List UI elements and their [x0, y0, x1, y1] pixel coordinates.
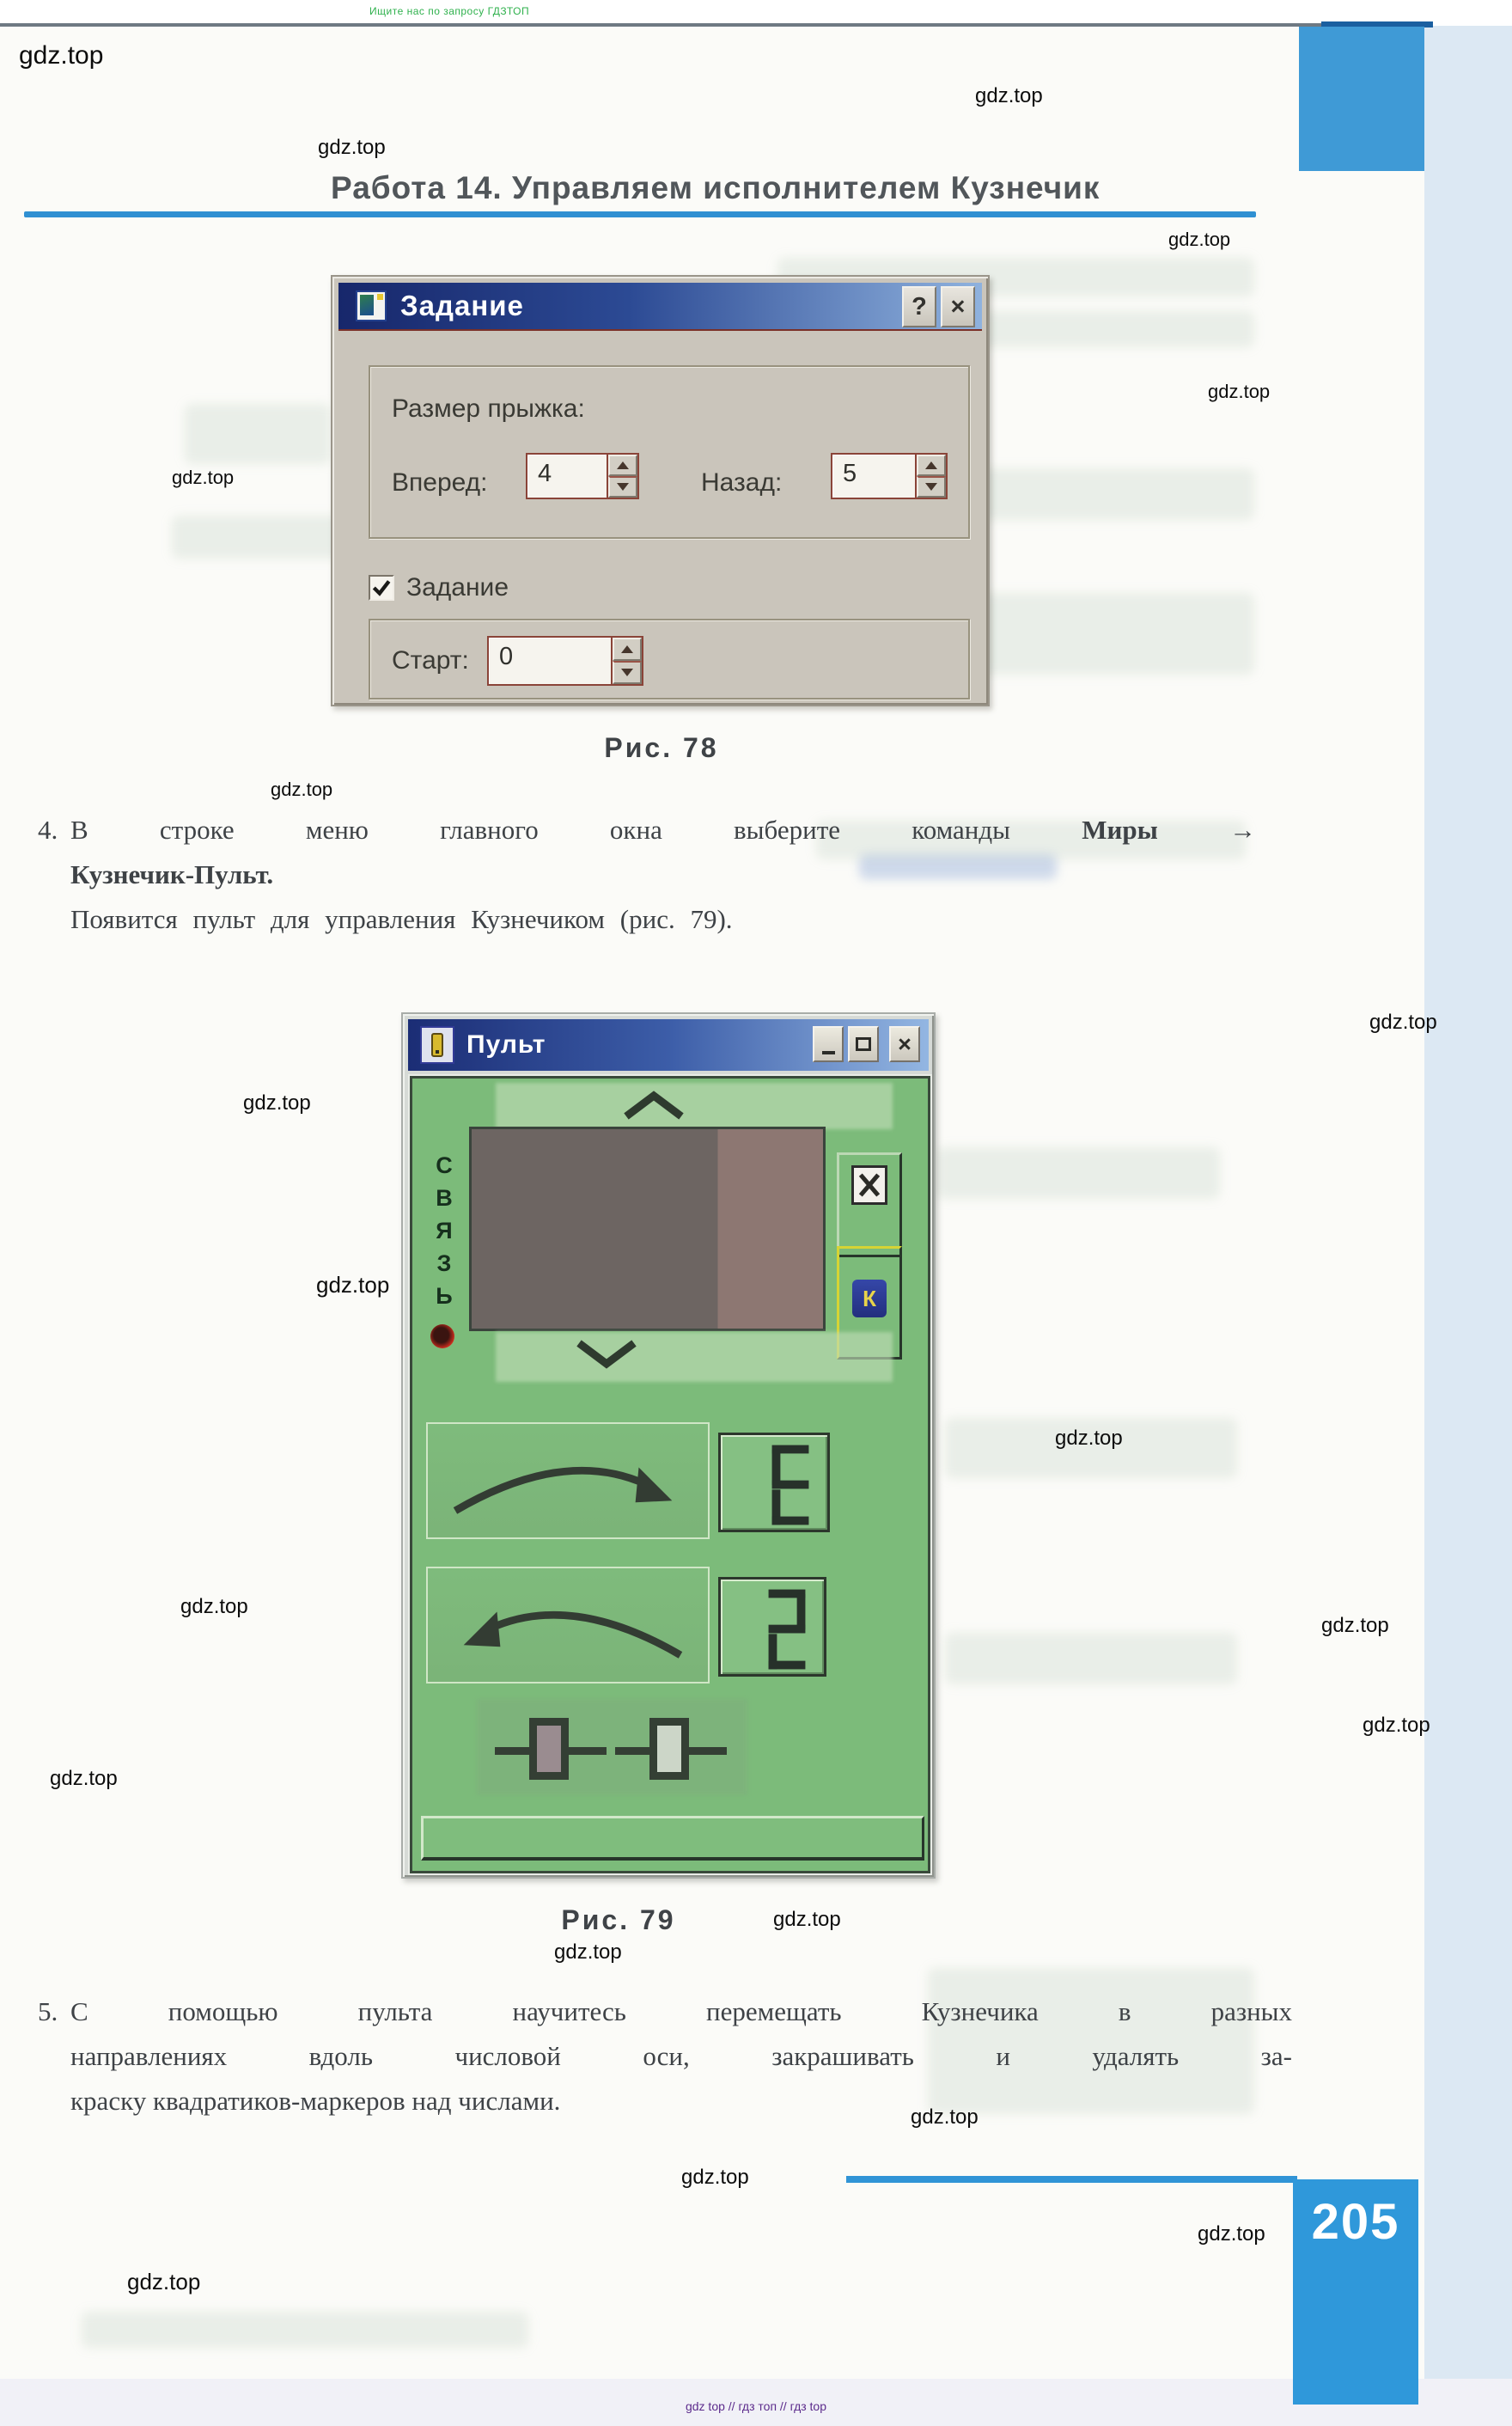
top-band [496, 1083, 893, 1129]
minimize-icon [822, 1051, 835, 1054]
backward-jump-display [718, 1577, 826, 1677]
watermark: gdz.top [127, 2269, 200, 2295]
pult-window-title: Пульт [466, 1030, 546, 1060]
forward-spin-down-button[interactable] [608, 476, 637, 498]
minimize-button[interactable] [813, 1026, 844, 1062]
forward-spinner[interactable]: 4 [526, 453, 639, 499]
pult-screen [469, 1127, 826, 1331]
watermark: gdz.top [1198, 2222, 1265, 2246]
task-checkbox-row[interactable]: Задание [369, 573, 509, 602]
page-number-rule [846, 2176, 1297, 2183]
watermark: gdz.top [975, 84, 1043, 108]
arrow-right-icon: → [1229, 815, 1256, 845]
start-spin-down-button[interactable] [613, 661, 642, 684]
forward-spin-up-button[interactable] [608, 455, 637, 476]
x-key-frame [837, 1152, 902, 1257]
jump-backward-button[interactable] [426, 1567, 710, 1684]
watermark: gdz.top [172, 467, 234, 489]
scanned-textbook-page: Ищите нас по запросу ГДЗТОП gdz.top gdz.… [0, 0, 1512, 2426]
step-5-line-1: С помощью пульта научитесь перемещать Ку… [70, 1989, 1292, 2034]
step-4-line-2: Кузнечик-Пульт. [70, 852, 1256, 897]
watermark: gdz.top [554, 1940, 622, 1965]
back-label: Назад: [701, 468, 782, 498]
zadanie-dialog: Задание ? × Размер прыжка: Вперед: 4 Наз… [331, 275, 990, 706]
back-spin-up-button[interactable] [917, 455, 946, 476]
step-5-line-3: краску квадратиков-маркеров над числами. [70, 2079, 1292, 2124]
arrow-down-icon [617, 483, 629, 491]
link-indicator-led [430, 1324, 454, 1348]
watermark: gdz.top [19, 41, 103, 70]
bleed-artifact [945, 1633, 1237, 1684]
pult-window: Пульт × С В Я З Ь [401, 1012, 936, 1879]
pult-window-icon [420, 1026, 454, 1064]
figure-79-caption: Рис. 79 [438, 1904, 799, 1936]
step-number: 5. [38, 1989, 58, 2034]
close-button[interactable]: × [941, 286, 975, 327]
zadanie-dialog-title: Задание [400, 290, 524, 322]
chevron-down-icon[interactable] [574, 1338, 639, 1372]
start-groupbox: Старт: 0 [369, 619, 970, 700]
arrow-down-icon [621, 669, 633, 676]
zadanie-window-icon [356, 290, 387, 321]
bleed-artifact [82, 2312, 528, 2348]
close-button[interactable]: × [889, 1026, 920, 1062]
arrow-down-icon [925, 483, 937, 491]
step-4-line-3: Появится пульт для управления Кузнечиком… [70, 897, 1256, 942]
watermark: gdz.top [318, 136, 386, 160]
k-key-button[interactable]: К [852, 1280, 887, 1317]
back-spinner[interactable]: 5 [831, 453, 948, 499]
page-top-edge [0, 23, 1424, 27]
arrow-up-icon [621, 645, 633, 653]
task-checkbox[interactable] [369, 575, 394, 601]
page-number: 205 [1293, 2193, 1418, 2251]
start-spinner[interactable]: 0 [487, 636, 643, 686]
step-number: 4. [38, 808, 58, 852]
bleed-artifact [185, 404, 331, 464]
start-label: Старт: [392, 646, 469, 675]
pult-control-panel: С В Я З Ь К [410, 1076, 930, 1873]
step-5-line-2: направлениях вдоль числовой оси, закраши… [70, 2034, 1292, 2079]
bottom-band [496, 1332, 893, 1382]
filled-square-icon [529, 1718, 569, 1780]
jump-size-groupbox: Размер прыжка: Вперед: 4 Назад: 5 [369, 365, 970, 539]
maximize-button[interactable] [848, 1026, 879, 1062]
start-spin-up-button[interactable] [613, 638, 642, 661]
jump-forward-button[interactable] [426, 1422, 710, 1539]
checkmark-icon [370, 577, 393, 599]
start-value[interactable]: 0 [489, 638, 611, 684]
back-value[interactable]: 5 [832, 455, 915, 498]
empty-square-icon [649, 1718, 689, 1780]
pult-status-bar [421, 1816, 924, 1861]
x-icon [855, 1169, 884, 1201]
curved-arrow-right-icon [428, 1424, 708, 1537]
header-note: Ищите нас по запросу ГДЗТОП [369, 5, 529, 17]
step-5-paragraph: 5. С помощью пульта научитесь перемещать… [38, 1989, 1292, 2124]
watermark: gdz.top [681, 2166, 749, 2190]
forward-jump-display [718, 1433, 830, 1532]
back-spin-down-button[interactable] [917, 476, 946, 498]
watermark: gdz.top [50, 1767, 118, 1791]
curved-arrow-left-icon [428, 1568, 708, 1682]
blue-corner-square [1299, 27, 1424, 171]
link-label: С В Я З Ь [430, 1152, 459, 1316]
task-checkbox-label: Задание [406, 573, 509, 602]
figure-78-caption: Рис. 78 [481, 732, 842, 764]
watermark: gdz.top [1208, 381, 1270, 403]
step-4-line-1: В строке меню главного окна выберите ком… [70, 808, 1256, 852]
title-underline-rule [24, 211, 1256, 217]
zadanie-dialog-titlebar[interactable]: Задание ? × [338, 283, 982, 331]
step-4-paragraph: 4. В строке меню главного окна выберите … [38, 808, 1256, 942]
adjacent-page-strip [1424, 26, 1512, 2380]
watermark: gdz.top [1369, 1011, 1437, 1035]
watermark: gdz.top [180, 1595, 248, 1619]
marker-filled [495, 1718, 607, 1787]
watermark: gdz.top [271, 779, 332, 801]
footer-note: gdz top // гдз топ // гдз top [0, 2399, 1512, 2413]
seven-segment-digit-2 [759, 1586, 815, 1672]
x-key-button[interactable] [851, 1165, 887, 1205]
watermark: gdz.top [316, 1272, 389, 1299]
arrow-up-icon [925, 461, 937, 469]
watermark: gdz.top [1168, 229, 1230, 251]
jump-size-label: Размер прыжка: [392, 394, 585, 424]
arrow-up-icon [617, 461, 629, 469]
forward-label: Вперед: [392, 468, 488, 498]
seven-segment-digit-3-mirrored [762, 1442, 819, 1528]
bleed-artifact [936, 1147, 1220, 1199]
watermark: gdz.top [1321, 1614, 1389, 1638]
watermark: gdz.top [1363, 1714, 1430, 1738]
chevron-up-icon[interactable] [621, 1087, 686, 1121]
marker-empty [615, 1718, 727, 1787]
watermark: gdz.top [243, 1091, 311, 1115]
forward-value[interactable]: 4 [527, 455, 607, 498]
watermark: gdz.top [1055, 1427, 1123, 1451]
pult-window-titlebar[interactable]: Пульт × [408, 1019, 929, 1071]
page-title: Работа 14. Управляем исполнителем Кузнеч… [331, 170, 1100, 206]
maximize-icon [856, 1037, 871, 1051]
help-button[interactable]: ? [902, 286, 936, 327]
page-number-block: 205 [1293, 2179, 1418, 2405]
